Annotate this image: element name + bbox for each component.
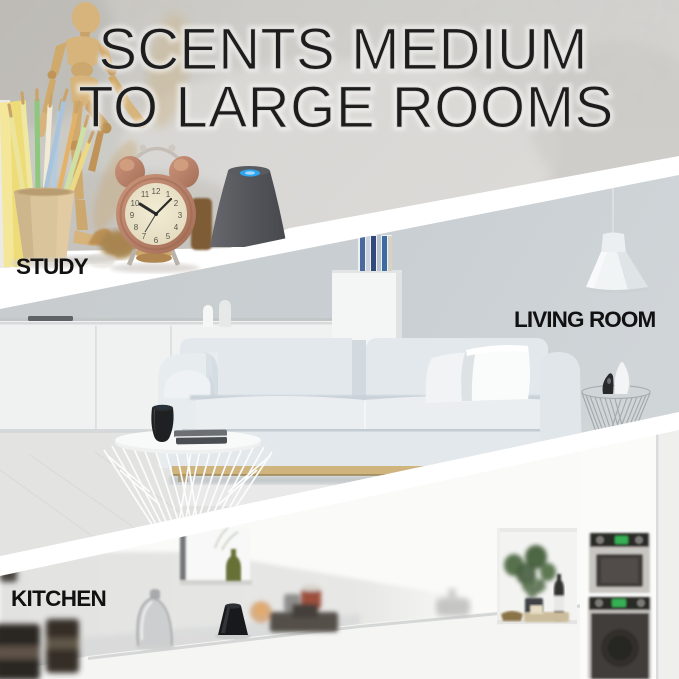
svg-text:7: 7 [142,232,147,241]
svg-text:8: 8 [134,223,139,232]
svg-text:4: 4 [174,223,179,232]
svg-text:5: 5 [166,232,171,241]
svg-text:TO LARGE ROOMS: TO LARGE ROOMS [78,75,614,140]
svg-text:LIVING ROOM: LIVING ROOM [514,307,656,332]
svg-text:SCENTS MEDIUM: SCENTS MEDIUM [98,17,587,82]
svg-text:STUDY: STUDY [16,254,89,279]
svg-text:3: 3 [178,211,183,220]
svg-text:9: 9 [130,211,135,220]
svg-text:11: 11 [141,190,150,199]
svg-text:10: 10 [131,199,140,208]
svg-text:12: 12 [152,187,161,196]
svg-text:1: 1 [166,190,171,199]
svg-text:2: 2 [174,199,179,208]
svg-text:6: 6 [154,236,159,245]
svg-text:KITCHEN: KITCHEN [11,586,106,611]
